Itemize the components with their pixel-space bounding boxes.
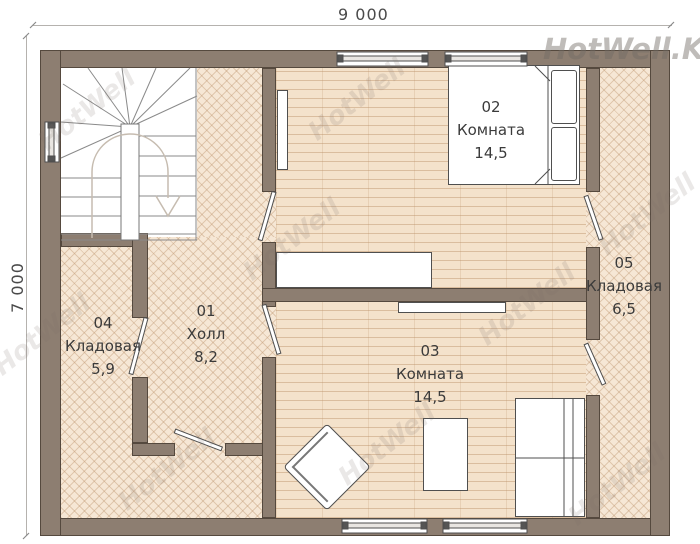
room-number: 04 [65, 312, 141, 335]
staircase-room-floor [61, 68, 197, 240]
room-number: 05 [586, 252, 662, 275]
dimension-height-label: 7 000 [8, 262, 27, 313]
bed-pillow-top [551, 70, 577, 124]
room-name: Кладовая [586, 275, 662, 298]
wall-hall-room03-lower [262, 357, 276, 518]
radiator-room02 [277, 90, 288, 170]
wall-hall-room02-upper [262, 68, 276, 192]
room-number: 03 [396, 340, 464, 363]
room-label-hall: 01 Холл 8,2 [187, 300, 226, 369]
room-label-room02: 02 Комната 14,5 [457, 96, 525, 165]
dimension-width-line [33, 25, 672, 26]
room-name: Комната [396, 363, 464, 386]
wall-room02-room03 [262, 288, 600, 302]
dresser-room02 [276, 252, 432, 288]
bed-pillow-bottom [551, 127, 577, 181]
floor-plan: 9 000 7 000 [0, 0, 700, 544]
dimension-width-label: 9 000 [338, 5, 389, 24]
room-area: 8,2 [187, 346, 226, 369]
room-name: Комната [457, 119, 525, 142]
room-number: 02 [457, 96, 525, 119]
room-label-storage05: 05 Кладовая 6,5 [586, 252, 662, 321]
wall-storage04-lower [132, 377, 148, 443]
room-name: Кладовая [65, 335, 141, 358]
room-area: 14,5 [457, 142, 525, 165]
wall-outer-left [40, 50, 61, 536]
wall-storage04-upper [132, 233, 148, 318]
wall-under-stairs [61, 233, 134, 247]
room-area: 6,5 [586, 298, 662, 321]
room-number: 01 [187, 300, 226, 323]
room-area: 14,5 [396, 386, 464, 409]
radiator-room03 [398, 302, 506, 313]
wall-outer-bottom [40, 518, 670, 536]
table-room03 [423, 418, 468, 491]
room-name: Холл [187, 323, 226, 346]
room-label-room03: 03 Комната 14,5 [396, 340, 464, 409]
wall-vestibule-left [132, 443, 175, 456]
room-area: 5,9 [65, 358, 141, 381]
wall-room02-storage05-upper [586, 68, 600, 192]
room-label-storage04: 04 Кладовая 5,9 [65, 312, 141, 381]
wall-room03-storage05-lower [586, 395, 600, 518]
single-bed-room03 [515, 398, 585, 517]
